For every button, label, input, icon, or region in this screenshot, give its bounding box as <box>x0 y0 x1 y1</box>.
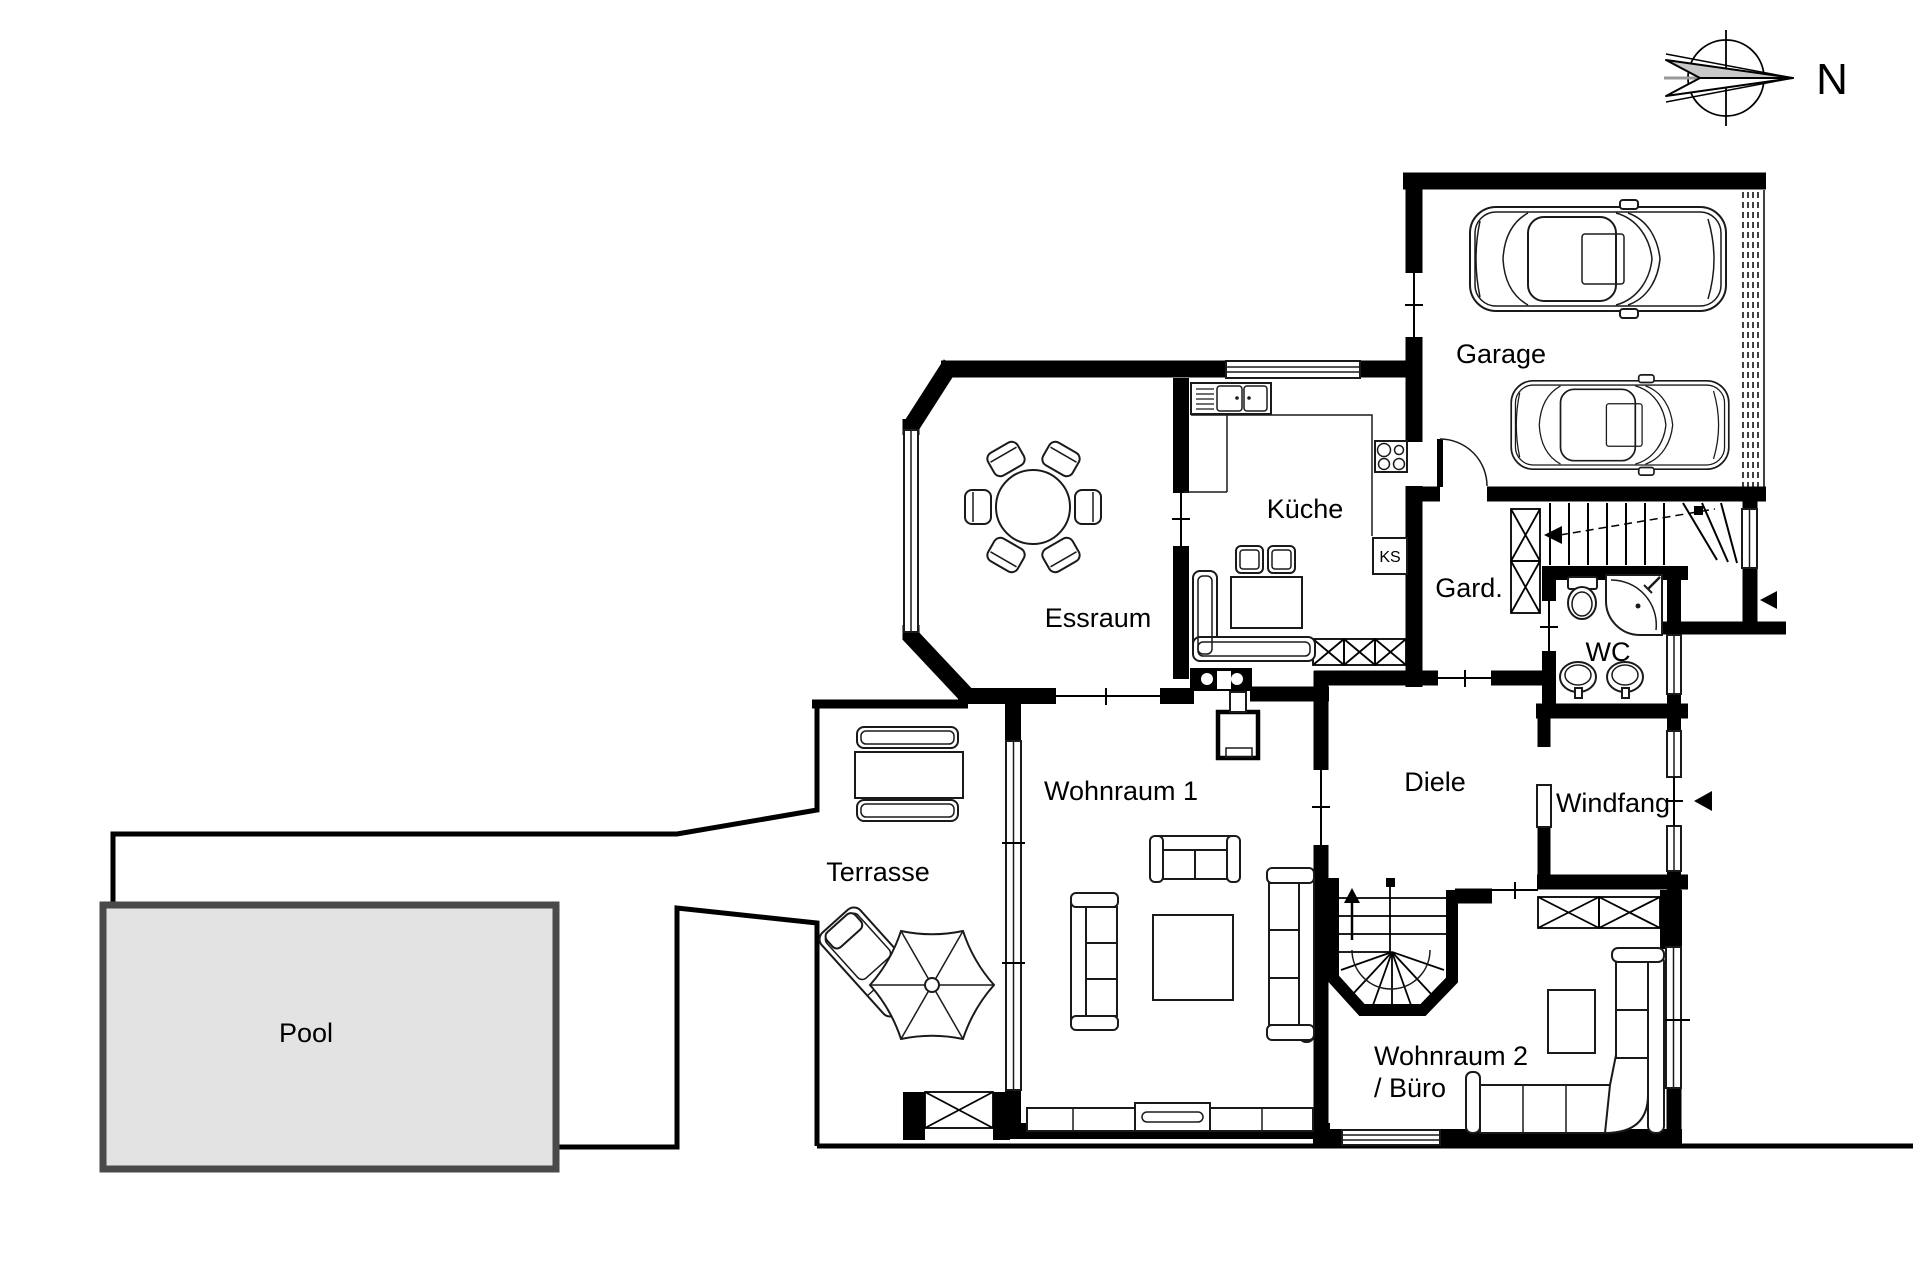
corner-sofa-corner <box>1605 1055 1648 1133</box>
fireplace <box>1190 668 1252 691</box>
garage-door-arc <box>1440 439 1487 486</box>
wohnraum2-window-south <box>1342 1130 1440 1145</box>
side-entrance-arrow-icon <box>1760 591 1777 609</box>
floor-plan-page: Garage Küche KS Gard. WC Essraum Diele W… <box>0 0 1920 1280</box>
stairs-winder <box>1333 878 1452 1012</box>
dining-chair <box>1075 490 1101 524</box>
sofa-right <box>1299 868 1314 1042</box>
room-label-terrasse: Terrasse <box>826 857 930 887</box>
kueche-window <box>1226 361 1360 378</box>
car-top-view-icon <box>1470 200 1726 318</box>
sofa-three-seat <box>1071 893 1086 1030</box>
walkway-lower-edge <box>556 907 817 1147</box>
stair-up-arrow <box>1344 888 1360 903</box>
dining-chair <box>965 490 991 524</box>
garage-gate <box>1743 192 1758 489</box>
terrace-planter <box>925 1092 993 1128</box>
compass-north-label: N <box>1816 55 1848 104</box>
room-label-windfang: Windfang <box>1556 788 1670 818</box>
desk <box>1548 990 1595 1053</box>
room-label-wohnraum2: Wohnraum 2 <box>1374 1041 1528 1071</box>
windfang-door-leaf <box>1537 785 1551 827</box>
room-label-wohnraum2-buero: / Büro <box>1374 1073 1446 1103</box>
room-label-garage: Garage <box>1456 339 1546 369</box>
room-label-essraum: Essraum <box>1045 603 1152 633</box>
dining-table <box>996 470 1070 544</box>
entrance-arrow-icon <box>1694 791 1712 811</box>
room-label-garderobe: Gard. <box>1435 573 1503 603</box>
room-label-wohnraum1: Wohnraum 1 <box>1044 776 1198 806</box>
windfang-wardrobe <box>1538 897 1660 928</box>
compass-icon <box>1664 30 1793 126</box>
garden-bench <box>857 800 958 821</box>
sideboard-box <box>1135 1103 1210 1131</box>
stove-pipe <box>1230 692 1246 712</box>
kueche-sideboard <box>1313 639 1406 665</box>
label-fridge-ks: KS <box>1379 549 1400 566</box>
room-label-kueche: Küche <box>1267 494 1344 524</box>
car-top-view-icon <box>1511 375 1729 475</box>
corner-sofa-back <box>1648 955 1664 1133</box>
floor-plan: Garage Küche KS Gard. WC Essraum Diele W… <box>0 0 1920 1280</box>
room-label-pool: Pool <box>279 1018 333 1048</box>
walkway-upper-edge <box>113 706 817 907</box>
coffee-table <box>1153 915 1233 1000</box>
stair-direction-arrow <box>1544 526 1562 544</box>
essraum-furniture <box>965 439 1101 575</box>
kitchen-table <box>1231 577 1302 628</box>
corner-sofa-seat <box>1480 1085 1610 1133</box>
garden-table <box>855 752 963 798</box>
wohnraum1-furniture <box>1027 692 1314 1131</box>
room-label-diele: Diele <box>1404 767 1466 797</box>
corner-sofa-armrest <box>1466 1072 1480 1133</box>
gard-wardrobe <box>1511 509 1540 613</box>
garden-bench <box>857 727 958 748</box>
room-label-wc: WC <box>1586 637 1631 667</box>
stairs-main <box>1544 503 1737 565</box>
